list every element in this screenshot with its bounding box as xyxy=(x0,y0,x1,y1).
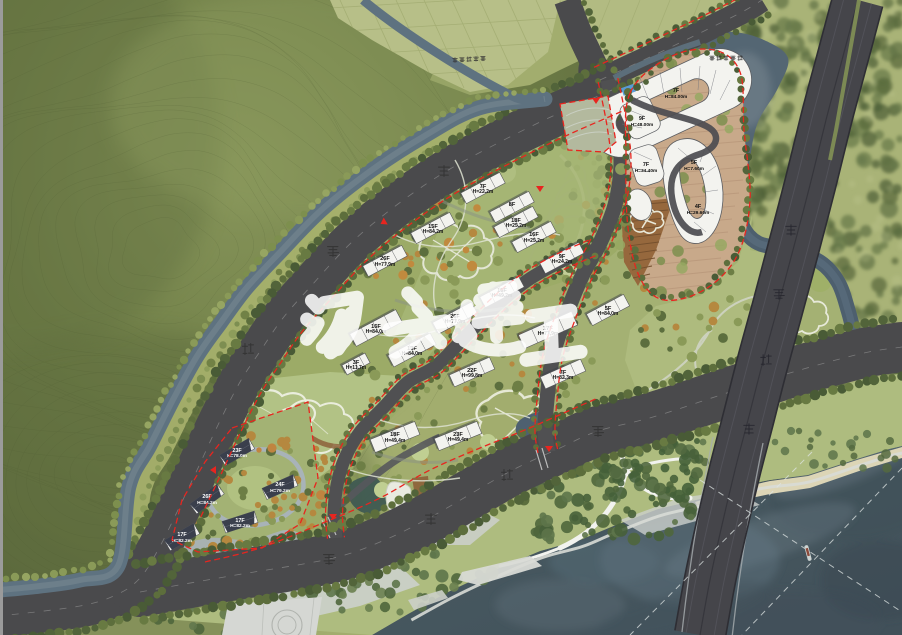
svg-text:H=49.4m: H=49.4m xyxy=(385,438,406,444)
svg-text:H=25.2m: H=25.2m xyxy=(506,223,527,229)
svg-text:H=82.2m: H=82.2m xyxy=(230,523,250,529)
svg-text:H=49.4m: H=49.4m xyxy=(448,437,469,443)
svg-text:H=29.60m: H=29.60m xyxy=(687,210,710,216)
svg-text:H=24.2m: H=24.2m xyxy=(552,259,573,265)
svg-text:4F: 4F xyxy=(695,204,702,210)
svg-text:5F: 5F xyxy=(691,160,698,166)
svg-text:7F: 7F xyxy=(673,88,680,94)
svg-text:H=79.2m: H=79.2m xyxy=(270,488,290,494)
svg-text:H=48.00m: H=48.00m xyxy=(631,122,654,128)
svg-text:H=82.3m: H=82.3m xyxy=(553,375,574,381)
svg-text:H=11.7m: H=11.7m xyxy=(346,365,367,371)
svg-text:24F: 24F xyxy=(275,482,285,488)
svg-text:H=77.9m: H=77.9m xyxy=(375,262,396,268)
svg-text:9F: 9F xyxy=(639,116,646,122)
svg-text:H=25.2m: H=25.2m xyxy=(524,238,545,244)
svg-text:17F: 17F xyxy=(177,532,187,538)
svg-text:H=84.00m: H=84.00m xyxy=(665,94,688,100)
svg-text:8F: 8F xyxy=(509,202,516,208)
svg-text:H=7.60m: H=7.60m xyxy=(684,166,704,172)
svg-text:H=34.40m: H=34.40m xyxy=(635,168,658,174)
svg-text:H=82.2m: H=82.2m xyxy=(172,538,192,544)
svg-text:7F: 7F xyxy=(643,162,650,168)
svg-text:H=84.0m: H=84.0m xyxy=(598,311,619,317)
svg-text:H=22.2m: H=22.2m xyxy=(473,189,494,195)
svg-text:H=84.2m: H=84.2m xyxy=(423,229,444,235)
svg-text:H=99.8m: H=99.8m xyxy=(462,373,483,379)
